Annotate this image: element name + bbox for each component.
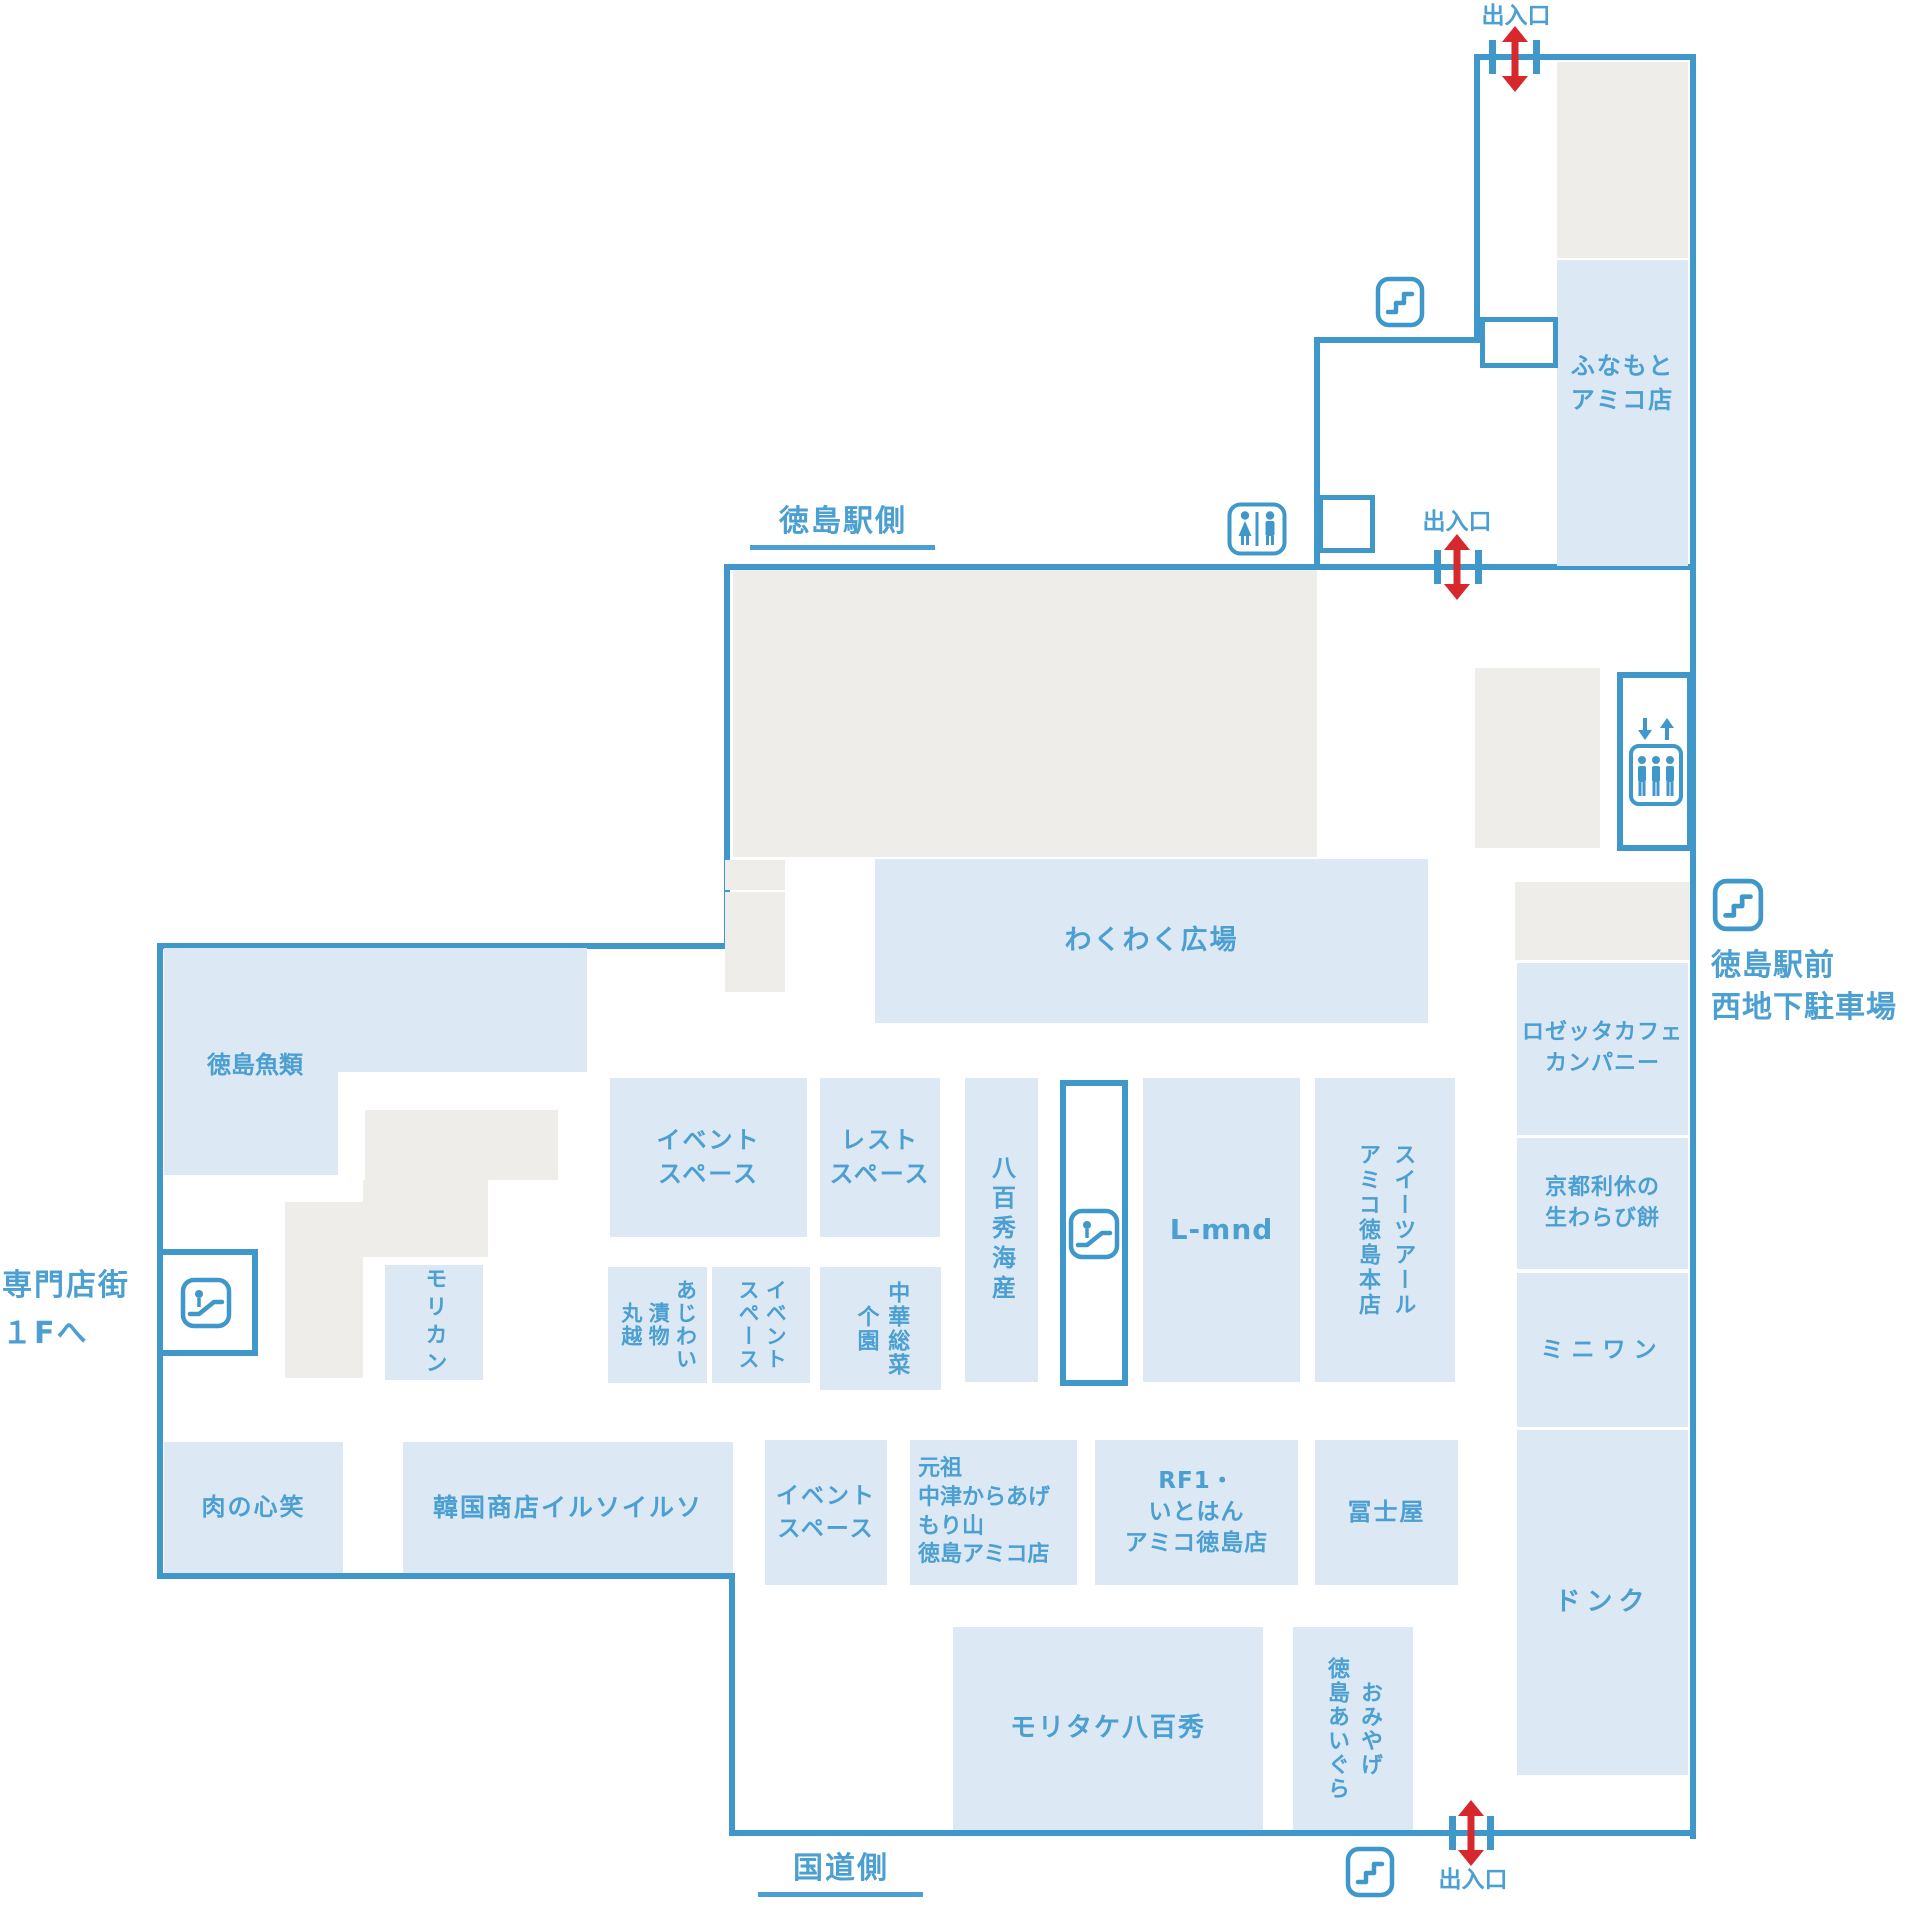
room-miniwan: ミニワン <box>1517 1273 1688 1427</box>
entrance-arrow <box>1454 1800 1488 1870</box>
station-side-label: 徳島駅側 <box>743 500 943 544</box>
backroom-area <box>1475 668 1600 848</box>
service-box <box>1318 495 1375 553</box>
room-event-space-3: イベント スペース <box>765 1440 887 1585</box>
wall-bottom-step <box>729 1573 735 1836</box>
room-funamoto: ふなもと アミコ店 <box>1557 260 1688 566</box>
entrance-arrow <box>1498 26 1532 96</box>
service-box <box>1480 317 1558 368</box>
room-yaohide-kaisan: 八百秀海産 <box>965 1078 1038 1382</box>
room-rosetta-cafe: ロゼッタカフェ カンパニー <box>1517 963 1688 1135</box>
exit-label-top: 出入口 <box>1466 0 1566 33</box>
backroom-area <box>733 570 1317 857</box>
specialty-floor-label: 専門店街 １Fへ <box>2 1262 167 1358</box>
room-sweets-r-amico: スイーツアール アミコ徳島本店 <box>1315 1078 1455 1382</box>
room-moritake-yaohide: モリタケ八百秀 <box>953 1627 1263 1830</box>
room-event-space-1: イベント スペース <box>610 1078 807 1237</box>
backroom-area <box>363 1180 488 1257</box>
room-rest-space: レスト スペース <box>820 1078 940 1237</box>
elevator-icon <box>1628 716 1684 812</box>
room-tokushima-gyorui <box>164 1072 338 1175</box>
station-side-underline <box>750 545 935 550</box>
wall-top-corridor-left <box>1474 54 1480 343</box>
room-rf1-itohan: RF1・ いとはん アミコ徳島店 <box>1095 1440 1298 1585</box>
stairs-icon <box>1345 1846 1395 1902</box>
room-fujiya: 冨士屋 <box>1315 1440 1458 1585</box>
parking-label: 徳島駅前 西地下駐車場 <box>1711 945 1920 1029</box>
room-donq: ドンク <box>1517 1430 1688 1775</box>
room-ganso-nakatsu-karaage: 元祖 中津からあげ もり山 徳島アミコ店 <box>910 1440 1077 1585</box>
room-ajiwai-tsukemono-marukoshi: あじわい 漬物 丸越 <box>608 1267 707 1383</box>
backroom-area <box>365 1110 558 1180</box>
entrance-arrow <box>1440 534 1474 604</box>
room-event-space-2: イベント スペース <box>712 1267 810 1383</box>
restroom-icon <box>1227 502 1287 560</box>
escalator-icon <box>180 1277 232 1333</box>
backroom-area <box>285 1202 363 1378</box>
floor-map: ふなもと アミコ店 わくわく広場 徳島魚類 モリカン イベント スペース レスト… <box>0 0 1920 1910</box>
room-morikan: モリカン <box>385 1265 483 1380</box>
room-tokushima-gyorui-label: 徳島魚類 <box>170 1048 340 1083</box>
stairs-icon <box>1711 878 1765 936</box>
exit-label-bottom: 出入口 <box>1423 1864 1523 1897</box>
wall-right <box>1690 54 1696 1839</box>
backroom-area <box>725 892 785 992</box>
escalator-icon <box>1068 1208 1120 1264</box>
backroom-area <box>725 860 785 890</box>
road-side-underline <box>758 1892 923 1897</box>
room-lmnd: L-mnd <box>1143 1078 1300 1382</box>
room-kyoto-rikyu: 京都利休の 生わらび餅 <box>1517 1138 1688 1269</box>
entrance-tick <box>1487 1816 1494 1850</box>
road-side-label: 国道側 <box>741 1847 941 1891</box>
room-omiyage-aigura: おみやげ 徳島あいぐら <box>1293 1627 1413 1830</box>
room-chuka-sozai: 中華総菜 个園 <box>820 1267 941 1390</box>
backroom-area <box>1557 62 1688 258</box>
entrance-tick <box>1475 550 1482 584</box>
room-wakuwaku-plaza: わくわく広場 <box>875 859 1428 1023</box>
stairs-icon <box>1375 276 1425 332</box>
entrance-tick <box>1533 40 1540 74</box>
room-niku-no-shinsho: 肉の心笑 <box>164 1442 343 1573</box>
wall-corridor-shelf <box>1314 337 1480 343</box>
wall-bottom-left <box>157 1573 735 1579</box>
backroom-area <box>1515 882 1690 960</box>
room-kankoku-ilso-ilso: 韓国商店イルソイルソ <box>403 1442 733 1573</box>
entrance-tick <box>1489 40 1496 74</box>
exit-label-middle: 出入口 <box>1407 506 1507 539</box>
wall-bottom <box>729 1830 1696 1836</box>
